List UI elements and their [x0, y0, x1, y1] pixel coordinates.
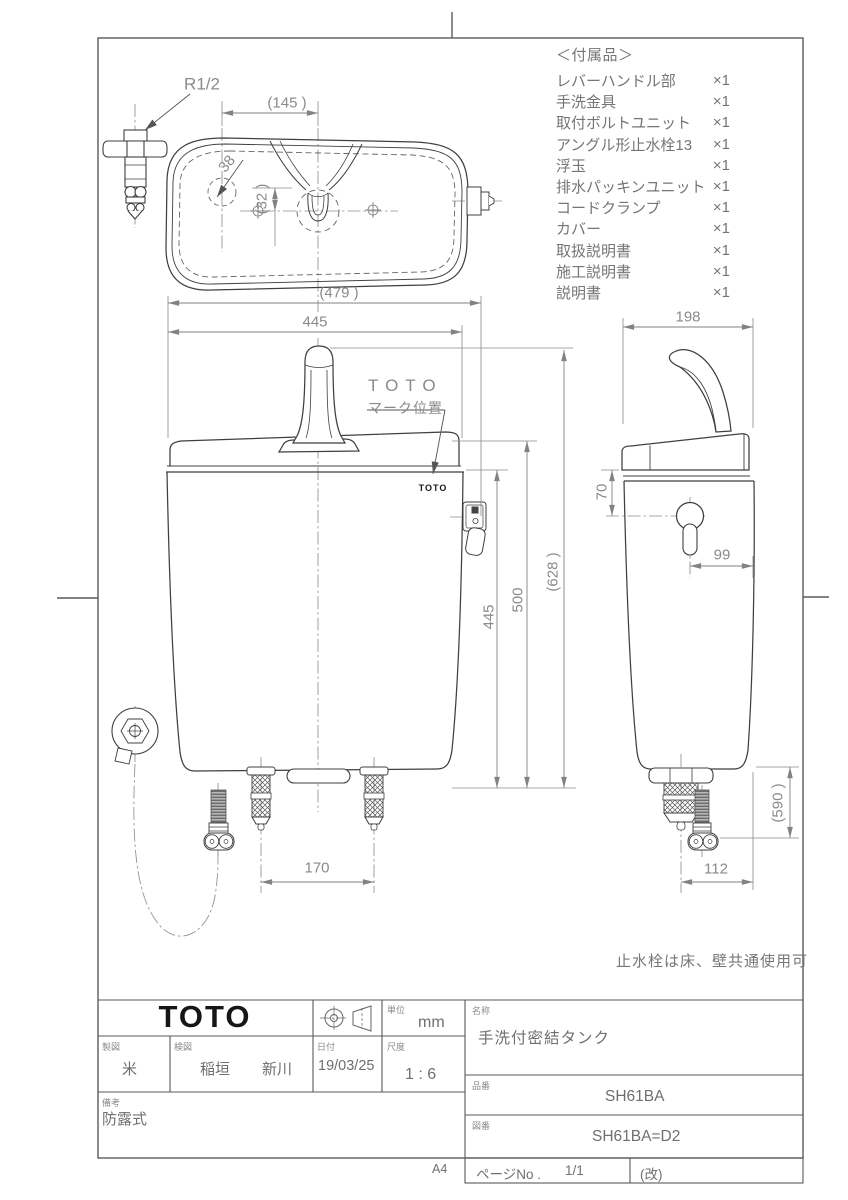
list-item: 浮玉×1: [556, 155, 730, 176]
date-label: 日付: [317, 1040, 335, 1053]
product-label: 品番: [472, 1079, 490, 1092]
faucet-front: [293, 346, 345, 443]
checker-label: 検図: [174, 1040, 192, 1053]
name-label: 名称: [472, 1004, 490, 1017]
dim-label-198: 198: [675, 310, 700, 325]
lever-plan: [467, 187, 494, 215]
spout-side: [669, 350, 731, 432]
page-no-label: ページNo .: [476, 1163, 541, 1183]
unit-label: 単位: [387, 1003, 405, 1016]
toto-logo: TOTO: [159, 999, 252, 1035]
product-value: SH61BA: [605, 1088, 664, 1106]
supply-front: [204, 790, 234, 850]
dim-label-112: 112: [704, 862, 728, 877]
dim-label-r12: R1/2: [184, 76, 220, 93]
tank-front: [167, 472, 463, 771]
mount-bolt-right: [360, 767, 388, 830]
drawing-no-value: SH61BA=D2: [592, 1128, 680, 1146]
drawing-sheet: ＜付属品＞ レバーハンドル部×1 手洗金具×1 取付ボルトユニット×1 アングル…: [0, 0, 848, 1200]
dim-label-145: (145 ): [267, 96, 306, 111]
scale-value: 1 : 6: [405, 1066, 436, 1084]
name-value: 手洗付密結タンク: [478, 1026, 610, 1048]
toto-mark-position-label: TOTO マーク位置: [368, 376, 443, 418]
accessories-list: ＜付属品＞ レバーハンドル部×1 手洗金具×1 取付ボルトユニット×1 アングル…: [556, 44, 730, 303]
r12-leader: [145, 94, 190, 130]
mark-leader: [367, 410, 445, 474]
revision-label: (改): [640, 1163, 663, 1183]
dim-label-445h: 445: [482, 604, 497, 629]
mount-bolt-left: [247, 767, 275, 830]
unit-value: mm: [418, 1014, 445, 1032]
dim-label-628: (628 ): [546, 552, 561, 591]
stop-valve-note: 止水栓は床、壁共通使用可: [616, 950, 808, 971]
remarks-value: 防露式: [102, 1108, 147, 1129]
tank-logo-mark: TOTO: [419, 483, 448, 493]
list-item: レバーハンドル部×1: [556, 70, 730, 91]
list-item: アングル形止水栓13×1: [556, 134, 730, 155]
list-item: 取扱説明書×1: [556, 240, 730, 261]
paper-size: A4: [432, 1162, 447, 1176]
lever-front: [463, 502, 486, 556]
list-item: コードクランプ×1: [556, 197, 730, 218]
drafter-value: 米: [122, 1058, 137, 1079]
dim-label-170: 170: [304, 861, 329, 876]
projection-symbol: [320, 1006, 371, 1031]
accessories-title: ＜付属品＞: [556, 44, 730, 65]
checker-value-1: 稲垣: [200, 1058, 230, 1079]
list-item: 手洗金具×1: [556, 91, 730, 112]
dim-label-445w: 445: [302, 315, 327, 330]
lever-side: [677, 503, 704, 556]
lid-side: [622, 434, 749, 470]
date-value: 19/03/25: [318, 1058, 374, 1074]
side-view: [622, 350, 754, 850]
dim-label-32: (32 ): [255, 184, 270, 215]
drafter-label: 製図: [102, 1040, 120, 1053]
list-item: カバー×1: [556, 218, 730, 239]
supply-hose-centerline: [134, 764, 218, 936]
drawing-no-label: 図番: [472, 1119, 490, 1132]
list-item: 取付ボルトユニット×1: [556, 112, 730, 133]
list-item: 排水パッキンユニット×1: [556, 176, 730, 197]
page-no-value: 1/1: [565, 1163, 584, 1178]
drain-seal-front: [287, 769, 350, 783]
checker-value-2: 新川: [262, 1058, 292, 1079]
list-item: 施工説明書×1: [556, 261, 730, 282]
dim-label-590: (590 ): [771, 783, 786, 822]
list-item: 説明書×1: [556, 282, 730, 303]
dim-label-500: 500: [511, 587, 526, 612]
dim-label-70: 70: [595, 484, 610, 501]
dim-label-479: (479 ): [319, 286, 358, 301]
scale-label: 尺度: [387, 1040, 405, 1053]
dim-label-99: 99: [714, 548, 731, 563]
top-view: [166, 138, 494, 290]
fitting-detail: [103, 130, 167, 219]
